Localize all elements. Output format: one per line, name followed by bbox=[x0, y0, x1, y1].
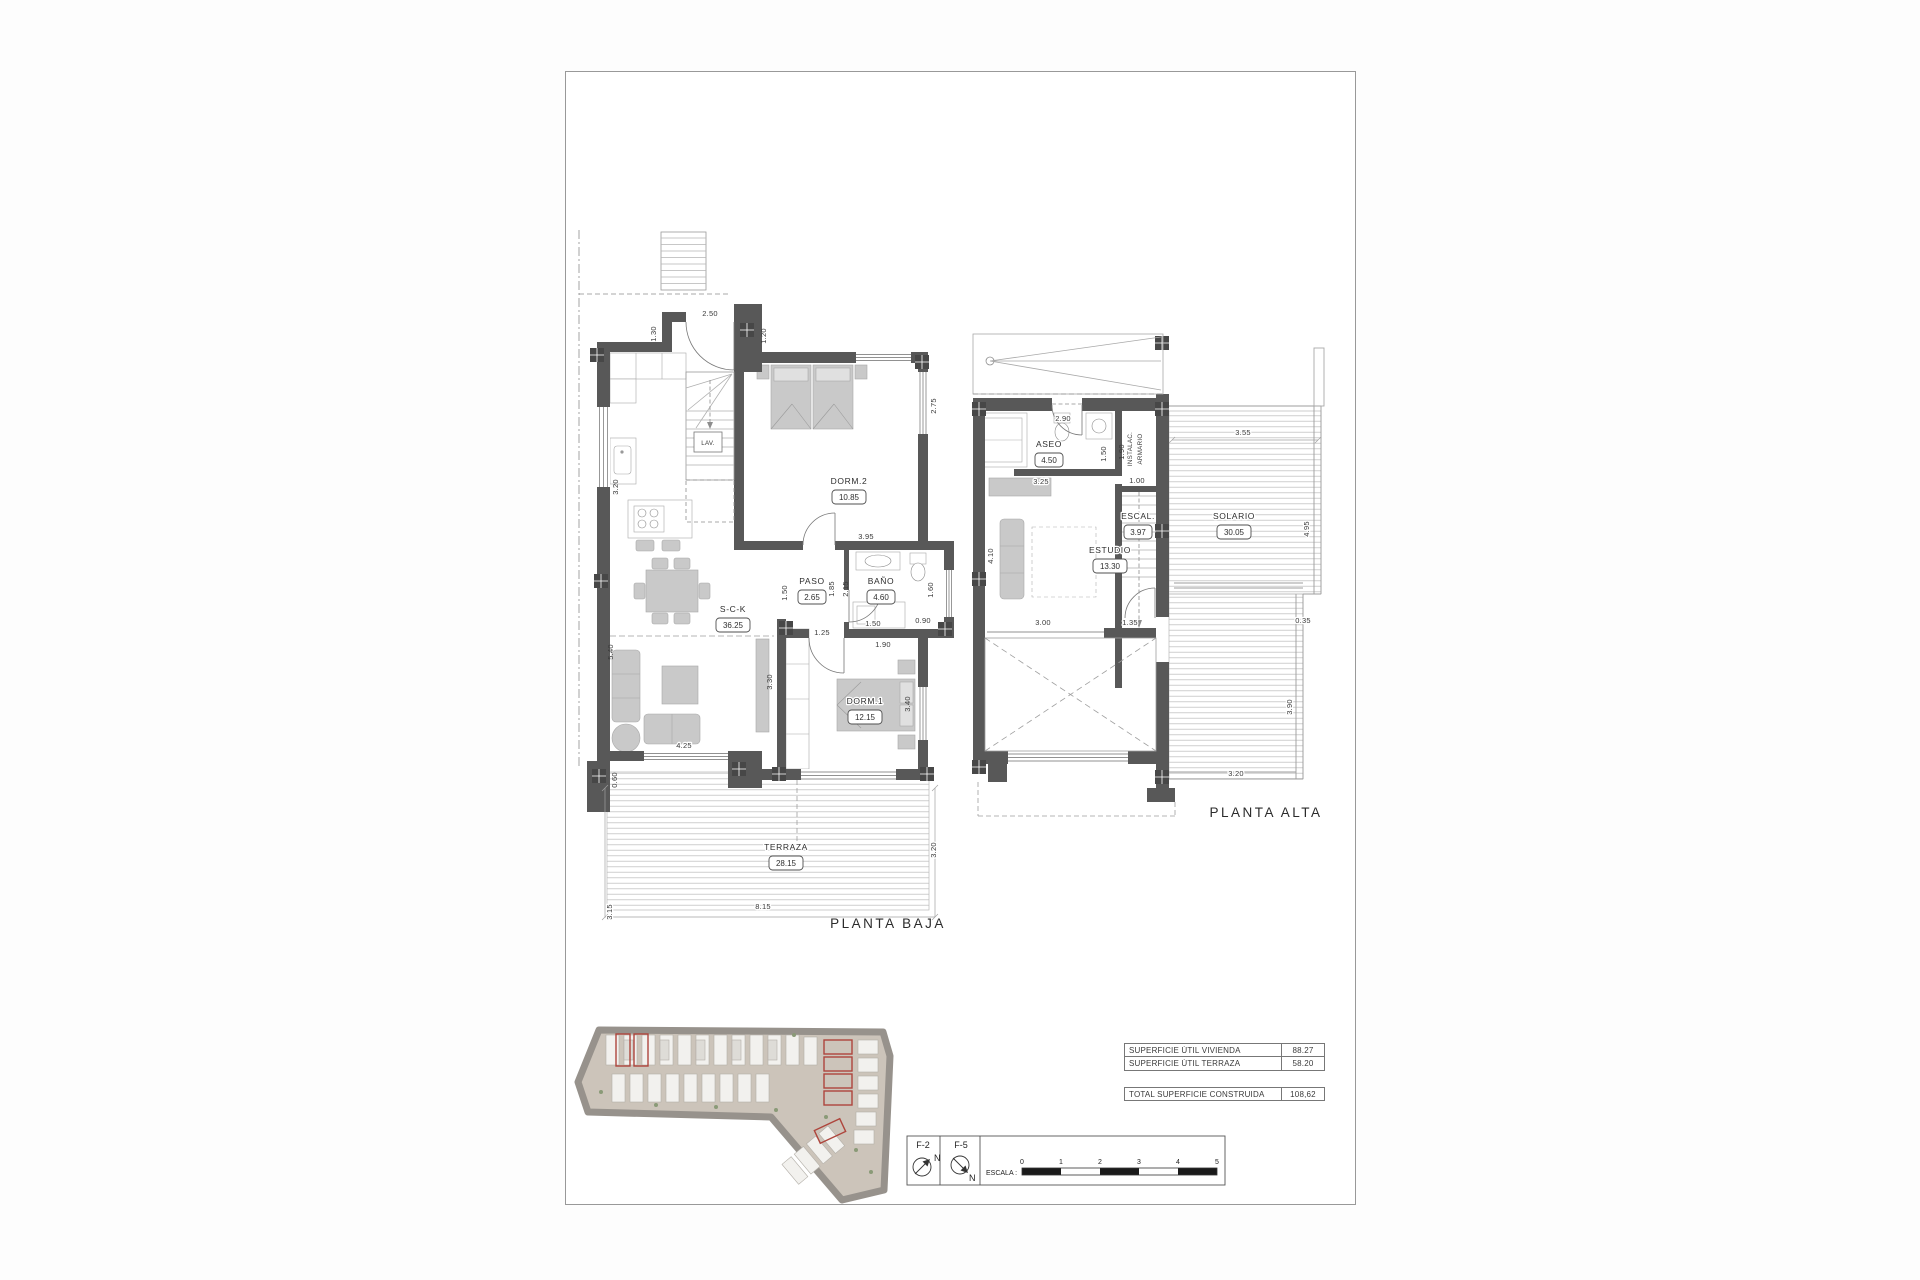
compass-f2-north: N bbox=[934, 1153, 941, 1163]
dim-label: 4.95 bbox=[1302, 521, 1311, 536]
room-name-sck: S-C-K bbox=[720, 604, 746, 614]
pa-solario-hatch bbox=[1169, 411, 1321, 779]
pa-windows bbox=[987, 632, 1128, 764]
drawing-sheet: 2.50 1.30 1.20 3.20 5.40 0.60 4.25 3.30 … bbox=[565, 71, 1356, 1205]
room-area-dorm1: 12.15 bbox=[855, 713, 876, 722]
room-name-bano: BAÑO bbox=[868, 576, 895, 586]
room-area-bano: 4.60 bbox=[873, 593, 889, 602]
compass-f5-label: F-5 bbox=[954, 1140, 968, 1150]
table-total-label: TOTAL SUPERFICIE CONSTRUIDA bbox=[1125, 1090, 1281, 1099]
table-row-value: 58.20 bbox=[1281, 1057, 1324, 1070]
table-total-row: TOTAL SUPERFICIE CONSTRUIDA 108,62 bbox=[1124, 1087, 1325, 1101]
room-name-estudio: ESTUDIO bbox=[1089, 545, 1131, 555]
table-row: SUPERFICIE ÚTIL VIVIENDA 88.27 bbox=[1124, 1043, 1325, 1057]
planta-baja-title: PLANTA BAJA bbox=[830, 916, 946, 931]
dim-label: 3.00 bbox=[1035, 618, 1050, 627]
dim-label: 8.15 bbox=[755, 902, 770, 911]
dim-label: 0.60 bbox=[610, 772, 619, 787]
room-name-dorm2: DORM.2 bbox=[831, 476, 868, 486]
dim-label: 2.90 bbox=[1055, 414, 1070, 423]
pb-furniture bbox=[610, 353, 926, 769]
pb-terrace-hatch bbox=[607, 772, 929, 910]
dim-label: 1.60 bbox=[926, 582, 935, 597]
dim-label: 0.90 bbox=[915, 616, 930, 625]
dim-label: 1.50 bbox=[865, 619, 880, 628]
room-area-aseo: 4.50 bbox=[1041, 456, 1057, 465]
room-area-solario: 30.05 bbox=[1224, 528, 1245, 537]
planta-alta-plan: 2.90 1.50 1.90 1.00 3.25 4.10 3.55 4.95 … bbox=[972, 334, 1324, 820]
table-row-label: SUPERFICIE ÚTIL VIVIENDA bbox=[1125, 1046, 1281, 1055]
room-area-terraza: 28.15 bbox=[776, 859, 797, 868]
dim-label: 3.30 bbox=[765, 674, 774, 689]
scale-tick: 2 bbox=[1098, 1159, 1102, 1166]
scale-tick: 0 bbox=[1020, 1159, 1024, 1166]
dim-label: 3.20 bbox=[1228, 769, 1243, 778]
area-table: SUPERFICIE ÚTIL VIVIENDA 88.27 SUPERFICI… bbox=[1124, 1043, 1325, 1071]
dim-label: 1.85 bbox=[827, 581, 836, 596]
site-plan bbox=[578, 1030, 890, 1200]
dim-label: 1.00 bbox=[1129, 476, 1144, 485]
room-name-aseo: ASEO bbox=[1036, 439, 1062, 449]
scale-tick: 4 bbox=[1176, 1159, 1180, 1166]
room-area-escal: 3.97 bbox=[1130, 528, 1146, 537]
dim-label: 1.90 bbox=[1117, 444, 1126, 459]
table-row-value: 88.27 bbox=[1281, 1044, 1324, 1056]
dim-label: 4.25 bbox=[676, 741, 691, 750]
dim-label: 3.40 bbox=[903, 696, 912, 711]
dim-label: 2.15 bbox=[841, 581, 850, 596]
dim-label: 1.20 bbox=[759, 328, 768, 343]
room-name-lav: LAV. bbox=[701, 440, 715, 447]
dim-label: 5.40 bbox=[606, 644, 615, 659]
dim-label: 2.75 bbox=[929, 398, 938, 413]
table-total-value: 108,62 bbox=[1281, 1088, 1324, 1100]
dim-label: 3.25 bbox=[1033, 477, 1048, 486]
room-area-sck: 36.25 bbox=[723, 621, 744, 630]
scale-tick: 1 bbox=[1059, 1159, 1063, 1166]
room-area-paso: 2.65 bbox=[804, 593, 820, 602]
total-area-table: TOTAL SUPERFICIE CONSTRUIDA 108,62 bbox=[1124, 1087, 1325, 1101]
dim-label: 1.50 bbox=[1099, 446, 1108, 461]
dim-label: 3.20 bbox=[929, 842, 938, 857]
planta-baja-plan: 2.50 1.30 1.20 3.20 5.40 0.60 4.25 3.30 … bbox=[579, 230, 954, 931]
dim-label: 1.25 bbox=[814, 628, 829, 637]
dim-label: 4.10 bbox=[986, 548, 995, 563]
planta-alta-title: PLANTA ALTA bbox=[1209, 805, 1322, 820]
room-area-dorm2: 10.85 bbox=[839, 493, 860, 502]
table-row: SUPERFICIE ÚTIL TERRAZA 58.20 bbox=[1124, 1057, 1325, 1071]
dim-label: 0.35 bbox=[1295, 616, 1310, 625]
table-row-label: SUPERFICIE ÚTIL TERRAZA bbox=[1125, 1059, 1281, 1068]
room-name-armario: ARMARIO bbox=[1137, 434, 1144, 465]
room-name-paso: PASO bbox=[799, 576, 824, 586]
compass-f2-label: F-2 bbox=[916, 1140, 930, 1150]
screenshot-canvas: 2.50 1.30 1.20 3.20 5.40 0.60 4.25 3.30 … bbox=[0, 0, 1920, 1280]
room-name-terraza: TERRAZA bbox=[764, 842, 808, 852]
dim-label: 3.20 bbox=[611, 479, 620, 494]
dim-label: 1.30 bbox=[649, 326, 658, 341]
dim-label: 3.95 bbox=[858, 532, 873, 541]
room-name-escal: ESCAL. bbox=[1121, 511, 1155, 521]
room-name-dorm1: DORM.1 bbox=[847, 696, 884, 706]
dim-label: 1.90 bbox=[875, 640, 890, 649]
room-area-estudio: 13.30 bbox=[1100, 562, 1121, 571]
dim-label: 3.90 bbox=[1285, 699, 1294, 714]
floorplan-drawing: 2.50 1.30 1.20 3.20 5.40 0.60 4.25 3.30 … bbox=[566, 72, 1355, 1204]
dim-label: 1.50 bbox=[780, 585, 789, 600]
dim-label: 2.50 bbox=[702, 309, 717, 318]
compass-f5-north: N bbox=[969, 1173, 976, 1183]
scale-tick: 5 bbox=[1215, 1159, 1219, 1166]
scale-tick: 3 bbox=[1137, 1159, 1141, 1166]
dim-label: 1.35 bbox=[1122, 618, 1137, 627]
room-name-instalac: INSTALAC. bbox=[1127, 432, 1134, 466]
legend-box: F-2 N F-5 N ESCALA : 0 1 2 3 4 5 bbox=[907, 1136, 1225, 1185]
dim-label: 3.15 bbox=[605, 904, 614, 919]
scale-label: ESCALA : bbox=[986, 1170, 1017, 1177]
dim-label: 3.55 bbox=[1235, 428, 1250, 437]
room-name-solario: SOLARIO bbox=[1213, 511, 1255, 521]
